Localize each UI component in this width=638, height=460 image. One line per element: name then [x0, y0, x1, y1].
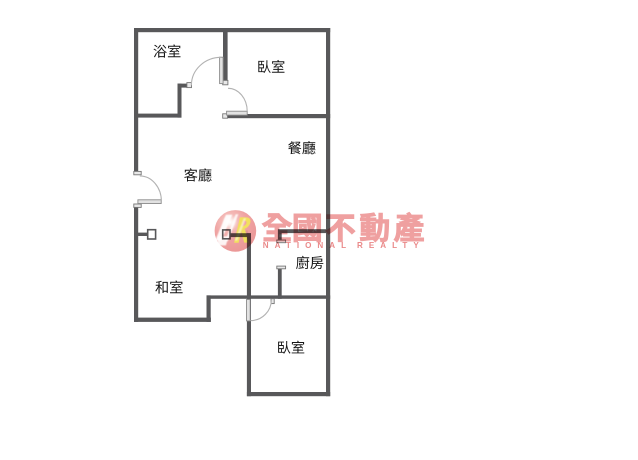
svg-text:REALTY: REALTY — [357, 241, 425, 250]
svg-text:NATIONAL: NATIONAL — [263, 241, 352, 250]
